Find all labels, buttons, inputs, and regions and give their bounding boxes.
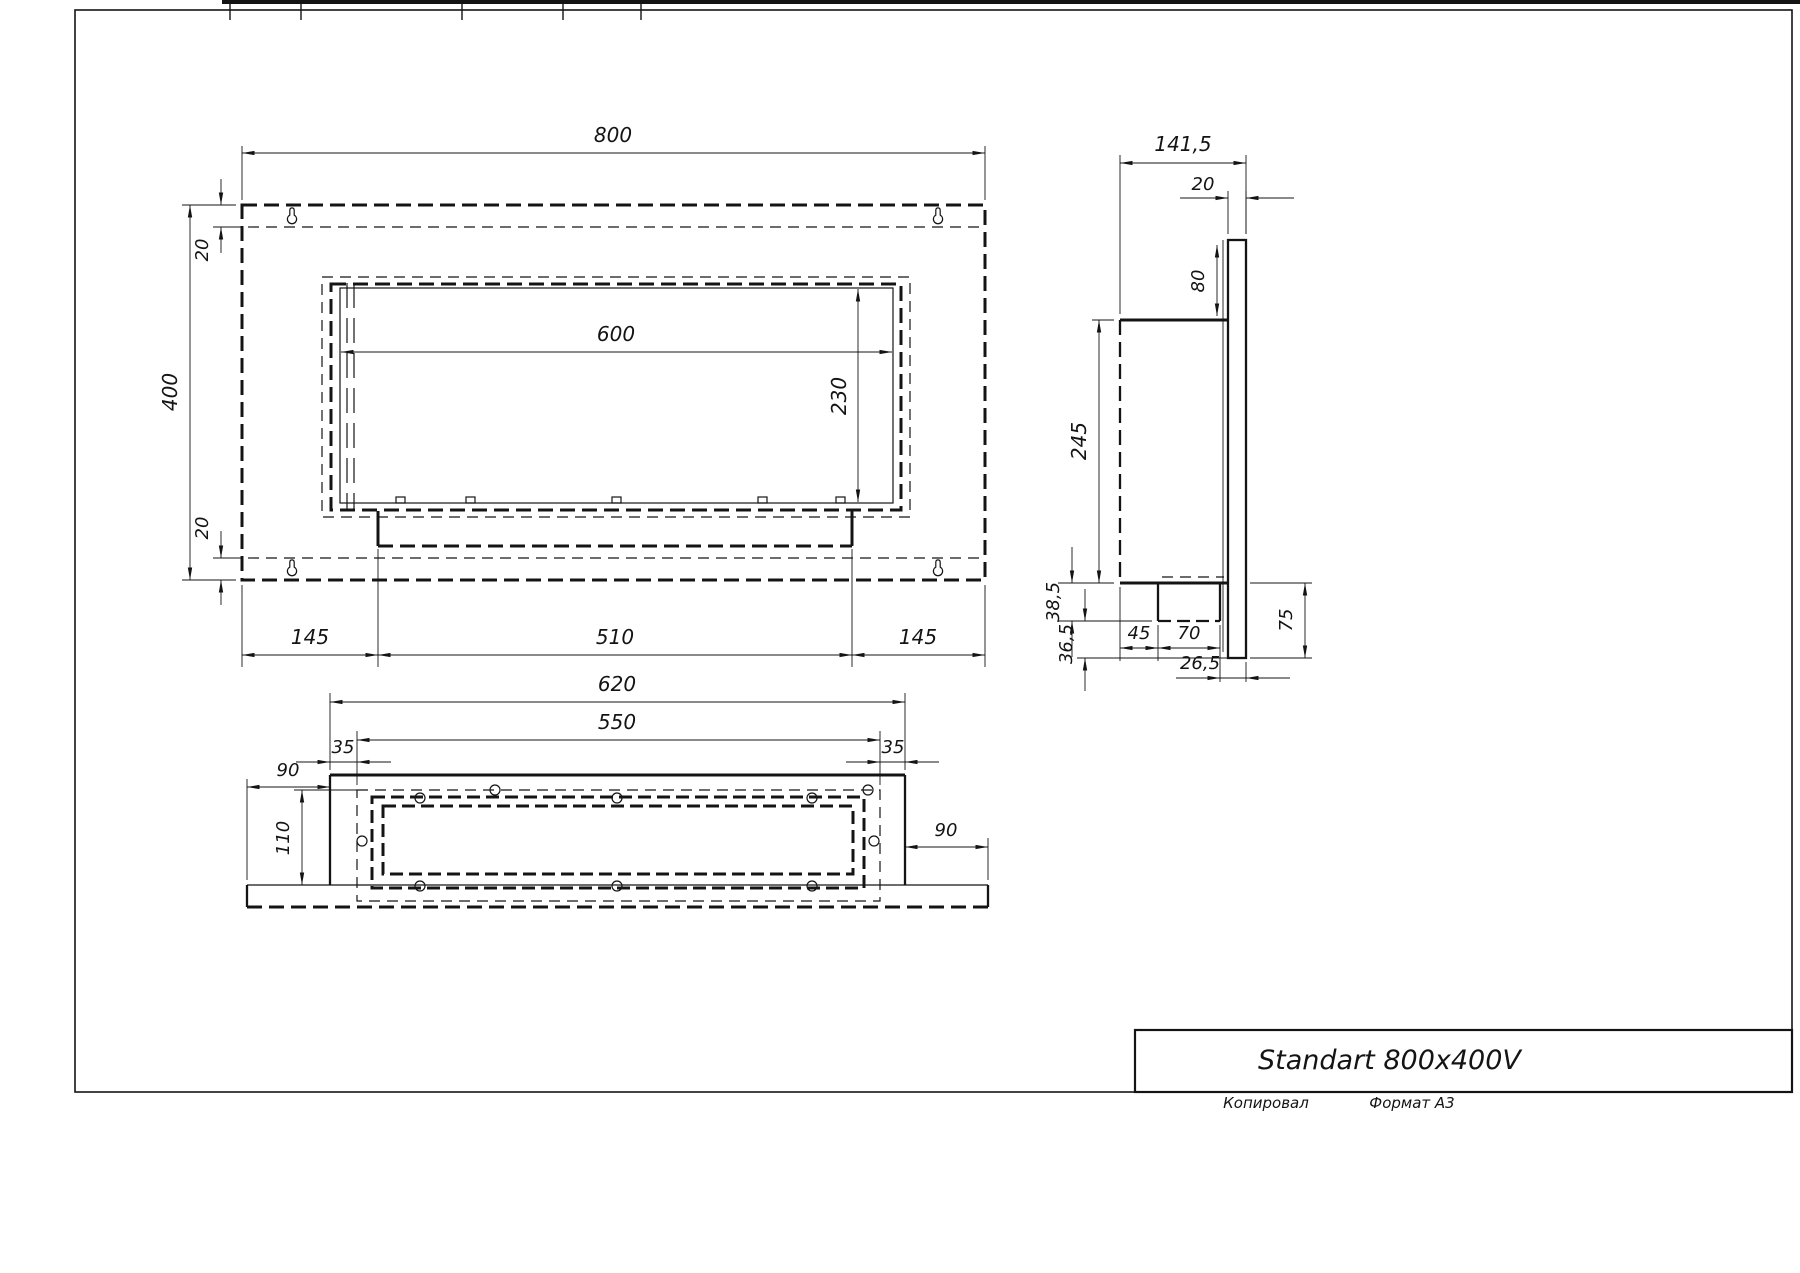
drawing-title: Standart 800x400V: [1258, 1045, 1523, 1076]
dim-burner-depth: 70: [1178, 623, 1201, 644]
dim-front-width: 800: [594, 123, 632, 147]
burner-contour: [383, 806, 853, 874]
dim-overhang-right: 90: [935, 820, 958, 841]
dim-lower-gap: 36,5: [1056, 624, 1077, 664]
technical-drawing: 800 400 20 20 600 230 145 510 145: [0, 0, 1800, 1273]
title-block: Standart 800x400V: [1135, 1030, 1792, 1092]
keyhole-mount-icon: [287, 208, 296, 224]
dim-front-bottom-offset: 20: [192, 517, 213, 540]
keyhole-mount-icon: [933, 560, 942, 576]
sheet-frame: [75, 0, 1800, 1092]
side-view-dimensions: 141,5 20 80 245 38,5 45 70 26,5 36,5: [1043, 132, 1312, 691]
wall-plate: [1228, 240, 1246, 658]
dim-plate-top-height: 80: [1188, 270, 1209, 293]
dim-burner-drop: 38,5: [1043, 582, 1064, 622]
drawing-sheet: 800 400 20 20 600 230 145 510 145: [0, 0, 1800, 1273]
footer-copied-label: Копировал: [1223, 1094, 1309, 1112]
dim-overhang-left: 90: [277, 760, 300, 781]
sheet-footer: Копировал Формат А3: [1223, 1094, 1455, 1112]
keyhole-mount-icon: [933, 208, 942, 224]
footer-format-label: Формат А3: [1369, 1094, 1454, 1112]
keyhole-mount-icon: [287, 560, 296, 576]
dim-opening-width-bottom: 550: [598, 710, 636, 734]
dim-depth: 110: [273, 821, 294, 855]
opening-visible-edge: [340, 288, 893, 503]
dim-inset-left: 35: [332, 737, 355, 758]
dim-bottom-right: 145: [899, 625, 937, 649]
dim-body-height: 245: [1067, 422, 1091, 460]
side-view: [1120, 240, 1246, 658]
dim-front-top-offset: 20: [192, 239, 213, 262]
dim-front-height: 400: [158, 373, 182, 411]
dim-burner-offset: 45: [1128, 623, 1151, 644]
burner-tray-hidden: [378, 511, 852, 546]
dim-plate-thickness: 20: [1192, 174, 1215, 195]
dim-back-gap: 26,5: [1180, 653, 1220, 674]
dim-bottom-left: 145: [291, 625, 329, 649]
opening-hidden-contour: [322, 277, 910, 517]
front-view: [242, 205, 985, 580]
border-frame: [75, 10, 1792, 1092]
dim-opening-width: 600: [597, 322, 635, 346]
dim-plate-below: 75: [1276, 609, 1297, 632]
dim-inset-right: 35: [882, 737, 905, 758]
clip-notches: [396, 497, 845, 503]
scan-edge-bar: [222, 0, 1800, 4]
bottom-view: [247, 775, 988, 907]
dim-body-width: 620: [598, 672, 636, 696]
dim-opening-height: 230: [827, 377, 851, 415]
opening-frame-contour: [331, 284, 901, 510]
bottom-view-dimensions: 620 550 35 35 90 110 90: [247, 672, 988, 885]
dim-side-depth: 141,5: [1154, 132, 1211, 156]
burner-box-side: [1158, 583, 1220, 621]
registration-ticks: [230, 3, 641, 20]
dim-bottom-center: 510: [596, 625, 634, 649]
